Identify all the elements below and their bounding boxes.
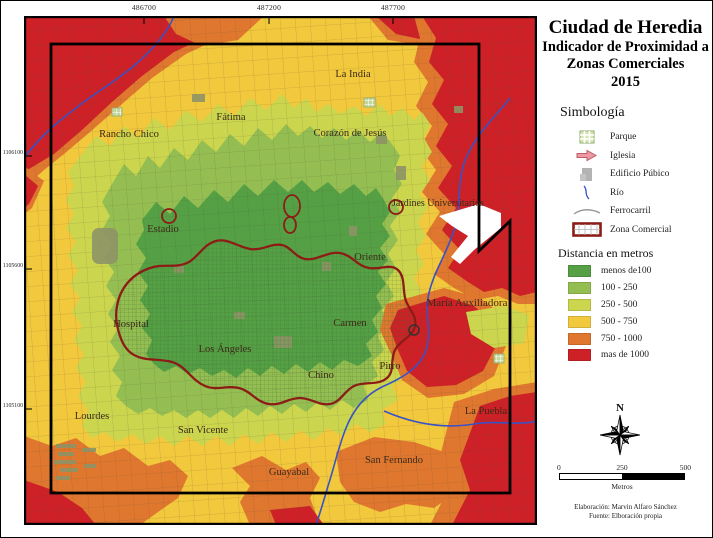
credit-author: Elaboración: Marvin Alfaro Sánchez <box>538 503 713 512</box>
credit-source: Fuente: Elboración propia <box>538 512 713 521</box>
distance-legend-heading: Distancia en metros <box>558 246 653 261</box>
grid-coordinate-left-1: 1106100 <box>1 150 23 156</box>
legend-item-label: Iglesia <box>610 151 635 161</box>
place-label-hospital: Hospital <box>113 319 149 330</box>
map-title-block: Ciudad de Heredia Indicador de Proximida… <box>538 17 713 91</box>
scale-tick-250: 250 <box>611 463 633 472</box>
river-icon <box>570 185 604 200</box>
legend-item-parque: Parque <box>570 128 708 147</box>
place-label-corazon-de-jesus: Corazón de Jesús <box>314 128 387 139</box>
place-label-lourdes: Lourdes <box>75 411 109 422</box>
legend-item-zona-comercial: Zona Comercial <box>570 221 708 240</box>
legend-item-label: Edificio Púbico <box>610 169 669 179</box>
grid-coordinate-left-2: 1105600 <box>1 263 23 269</box>
credits: Elaboración: Marvin Alfaro Sánchez Fuent… <box>538 503 713 522</box>
place-label-la-india: La India <box>335 69 371 80</box>
place-label-los-angeles: Los Ángeles <box>199 343 252 355</box>
distance-class-label: mas de 1000 <box>601 350 649 360</box>
map-subtitle-1: Indicador de Proximidad a <box>538 39 713 56</box>
place-label-rancho-chico: Rancho Chico <box>99 129 159 140</box>
legend-item-iglesia: Iglesia <box>570 147 708 166</box>
scale-bar <box>559 473 685 480</box>
legend-item-edificio: Edificio Púbico <box>570 165 708 184</box>
distance-class-label: 500 - 750 <box>601 317 637 327</box>
place-label-la-puebla: La Puebla <box>465 406 508 417</box>
distance-swatch <box>568 299 591 311</box>
scale-bar-segment-black <box>622 474 684 479</box>
legend-item-label: Río <box>610 188 624 198</box>
place-label-pirro: Pirro <box>380 361 401 372</box>
place-label-jardines-universitarios: Jardines Universitarios <box>392 198 484 209</box>
map-year: 2015 <box>538 74 713 91</box>
distance-swatch <box>568 333 591 345</box>
symbology-list: Parque Iglesia Edificio Púbico Río <box>570 128 708 239</box>
distance-class-label: 250 - 500 <box>601 300 637 310</box>
grid-coordinate-top-1: 486700 <box>124 3 164 12</box>
map-canvas: La India Fátima Corazón de Jesús Rancho … <box>24 16 537 525</box>
place-label-fatima: Fátima <box>216 112 246 123</box>
distance-swatch <box>568 282 591 294</box>
distance-class-row: 100 - 250 <box>568 280 708 297</box>
legend-item-label: Zona Comercial <box>610 225 671 235</box>
commercial-zone-icon <box>570 221 604 238</box>
legend-item-ferrocarril: Ferrocarril <box>570 202 708 221</box>
place-label-estadio: Estadio <box>147 224 179 235</box>
distance-class-row: mas de 1000 <box>568 347 708 364</box>
map-subtitle-2: Zonas Comerciales <box>538 56 713 73</box>
distance-class-row: menos de100 <box>568 263 708 280</box>
distance-legend-list: menos de100 100 - 250 250 - 500 500 - 75… <box>568 263 708 364</box>
proximity-map: La India Fátima Corazón de Jesús Rancho … <box>24 16 537 525</box>
sidebar: Ciudad de Heredia Indicador de Proximida… <box>538 1 713 537</box>
scale-tick-0: 0 <box>557 463 561 472</box>
scale-bar-unit: Metros <box>559 482 685 491</box>
place-label-oriente: Oriente <box>354 252 386 263</box>
map-sheet: La India Fátima Corazón de Jesús Rancho … <box>0 0 713 538</box>
legend-item-label: Ferrocarril <box>610 206 651 216</box>
scale-tick-500: 500 <box>680 463 691 472</box>
distance-class-row: 750 - 1000 <box>568 330 708 347</box>
distance-class-label: 750 - 1000 <box>601 334 642 344</box>
grid-coordinate-left-3: 1105100 <box>1 403 23 409</box>
distance-class-label: 100 - 250 <box>601 283 637 293</box>
grid-coordinate-top-3: 487700 <box>373 3 413 12</box>
church-icon <box>570 149 604 162</box>
place-label-san-vicente: San Vicente <box>178 425 229 436</box>
place-label-san-fernando: San Fernando <box>365 455 423 466</box>
distance-swatch <box>568 316 591 328</box>
legend-item-rio: Río <box>570 184 708 203</box>
place-label-carmen: Carmen <box>333 318 367 329</box>
map-title: Ciudad de Heredia <box>538 17 713 39</box>
legend-item-label: Parque <box>610 132 636 142</box>
place-label-chino: Chino <box>308 370 334 381</box>
park-icon <box>570 130 604 144</box>
distance-swatch <box>568 349 591 361</box>
distance-class-row: 500 - 750 <box>568 313 708 330</box>
place-label-guayabal: Guayabal <box>269 467 309 478</box>
scale-bar-segment-white <box>560 474 622 479</box>
grid-coordinate-top-2: 487200 <box>249 3 289 12</box>
public-building-icon <box>570 167 604 182</box>
distance-class-label: menos de100 <box>601 266 651 276</box>
place-label-maria-auxiliadora: María Auxiliadora <box>427 297 508 309</box>
distance-class-row: 250 - 500 <box>568 297 708 314</box>
north-arrow-icon <box>598 413 642 462</box>
symbology-heading: Simbología <box>560 105 625 121</box>
railroad-icon <box>570 206 604 216</box>
distance-swatch <box>568 265 591 277</box>
